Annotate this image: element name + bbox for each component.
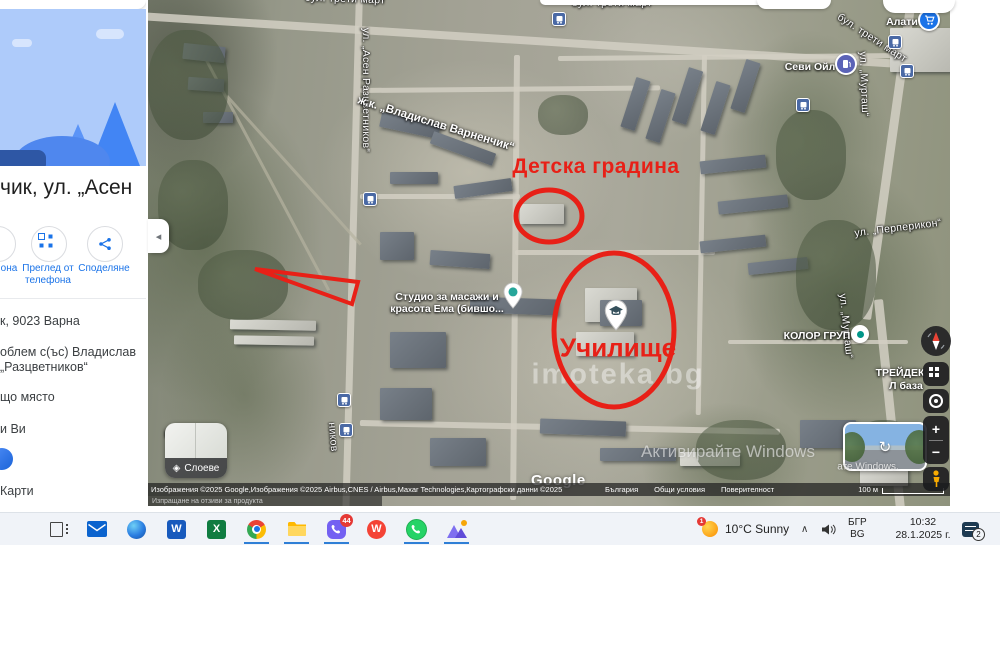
- show-hidden-icons-button[interactable]: ∧: [801, 513, 808, 545]
- building-decoration: [470, 296, 559, 315]
- pegman-button[interactable]: [923, 467, 949, 491]
- time-text: 10:32: [910, 516, 936, 529]
- word-icon: W: [167, 520, 186, 539]
- map-floating-card-edge: [757, 0, 831, 9]
- compass-needle-icon: [925, 330, 947, 352]
- speaker-icon: [821, 523, 836, 536]
- trees-decoration: [796, 220, 876, 330]
- pegman-icon: [930, 470, 942, 488]
- building-decoration: [730, 59, 760, 113]
- attribution-bar: Изображения ©2025 Google,Изображения ©20…: [148, 483, 950, 496]
- building-decoration: [718, 194, 789, 214]
- road-decoration: [148, 12, 950, 73]
- wps-icon: W: [367, 520, 386, 539]
- word-app-button[interactable]: W: [166, 517, 187, 541]
- whatsapp-button[interactable]: [406, 517, 427, 541]
- weather-text: 10°C Sunny: [725, 522, 789, 536]
- whatsapp-icon: [406, 519, 427, 540]
- mountains-app-button[interactable]: [446, 517, 467, 541]
- view-from-phone-button[interactable]: [31, 226, 67, 262]
- viber-app-button[interactable]: 44: [326, 517, 347, 541]
- building-decoration: [380, 388, 432, 420]
- hero-base-decoration: [0, 150, 46, 166]
- building-decoration: [645, 89, 675, 143]
- chrome-icon: [247, 520, 266, 539]
- building-decoration: [390, 332, 446, 368]
- compass-control[interactable]: [921, 326, 951, 356]
- street-view-preview-icon: ↻: [879, 438, 892, 456]
- share-button[interactable]: [87, 226, 123, 262]
- cloud-decoration: [12, 39, 32, 47]
- language-indicator[interactable]: БГР BG: [848, 513, 867, 545]
- share-label[interactable]: Споделяне: [74, 263, 134, 275]
- attribution-text: Изображения ©2025 Google,Изображения ©20…: [151, 485, 591, 494]
- building-decoration: [230, 319, 316, 330]
- weather-sun-icon: 1: [702, 521, 718, 537]
- file-explorer-button[interactable]: [286, 517, 307, 541]
- clock[interactable]: 10:32 28.1.2025 г.: [888, 513, 958, 545]
- building-decoration: [430, 131, 496, 166]
- divider: [0, 298, 146, 299]
- scale-label: 100 м: [858, 485, 878, 494]
- map-floating-card-edge: [540, 0, 770, 5]
- layers-label: Слоеве: [184, 463, 219, 474]
- viber-badge: 44: [340, 514, 353, 527]
- map-floating-card-edge: [883, 0, 955, 13]
- attribution-link[interactable]: България: [605, 485, 638, 494]
- road-decoration: [360, 194, 520, 199]
- language-line2: BG: [850, 529, 864, 542]
- my-location-button[interactable]: [923, 389, 949, 413]
- road-decoration: [342, 0, 363, 506]
- chrome-browser-button[interactable]: [246, 517, 267, 541]
- layers-tile-decoration: [195, 423, 196, 459]
- building-decoration: [700, 235, 767, 254]
- building-decoration: [430, 250, 491, 269]
- building-decoration: [700, 155, 767, 175]
- trees-decoration: [198, 250, 288, 320]
- maps-link[interactable]: Карти: [0, 484, 34, 498]
- building-decoration: [540, 419, 626, 437]
- task-view-button[interactable]: [46, 517, 67, 541]
- layers-strip: ◈ Слоеве: [165, 458, 227, 478]
- place-photo-placeholder[interactable]: [0, 9, 146, 166]
- zoom-in-button[interactable]: +: [923, 418, 949, 440]
- qr-code-icon: [38, 233, 45, 240]
- street-view-preview[interactable]: ↻: [843, 422, 927, 471]
- building-decoration: [390, 172, 438, 184]
- building-decoration: [890, 28, 950, 72]
- map-apps-grid-button[interactable]: [923, 362, 949, 386]
- road-decoration: [696, 55, 707, 415]
- building-decoration: [576, 332, 634, 356]
- folder-icon: [287, 521, 307, 537]
- notification-badge: 2: [972, 528, 985, 541]
- weather-badge: 1: [697, 517, 706, 526]
- road-decoration: [515, 250, 715, 255]
- excel-app-button[interactable]: X: [206, 517, 227, 541]
- excel-icon: X: [207, 520, 226, 539]
- maps-app-icon: [0, 448, 13, 470]
- windows-taskbar: W X 44 W 1 10°C Sunny: [0, 512, 1000, 545]
- desktop: { "sidebar": { "title": "чик, ул. „Асен"…: [0, 0, 1000, 666]
- edge-icon: [127, 520, 146, 539]
- share-icon: [98, 237, 112, 251]
- language-line1: БГР: [848, 517, 867, 530]
- building-decoration: [672, 67, 704, 125]
- task-view-icon: [50, 522, 63, 537]
- chevron-left-icon: ◂: [156, 230, 162, 243]
- chevron-up-icon: ∧: [801, 524, 808, 535]
- add-missing-place-link[interactable]: що място: [0, 390, 55, 404]
- edge-browser-button[interactable]: [126, 517, 147, 541]
- layers-button[interactable]: ◈ Слоеве: [165, 423, 227, 478]
- crosshair-icon: [929, 394, 943, 408]
- trees-decoration: [148, 30, 228, 140]
- attribution-links: БългарияОбщи условияПоверителност: [605, 485, 774, 494]
- mail-app-button[interactable]: [86, 517, 107, 541]
- place-title: чик, ул. „Асен: [0, 176, 132, 200]
- building-decoration: [520, 204, 564, 224]
- building-decoration: [600, 300, 642, 326]
- building-decoration: [430, 438, 486, 466]
- sidebar-collapse-button[interactable]: ◂: [148, 219, 169, 253]
- notification-icon: 2: [962, 522, 979, 537]
- claim-text-line2: „Разцветников“: [0, 360, 88, 374]
- notification-center-button[interactable]: 2: [962, 513, 979, 545]
- action-button-partial[interactable]: [0, 226, 16, 262]
- place-address: к, 9023 Варна: [0, 314, 80, 328]
- building-decoration: [380, 232, 414, 260]
- place-panel: чик, ул. „Асен она Преглед от телефона С…: [0, 0, 146, 512]
- claim-text-line1: облем с(ъс) Владислав: [0, 345, 136, 359]
- grid-icon: [929, 367, 933, 371]
- view-from-phone-label[interactable]: Преглед от телефона: [17, 263, 79, 287]
- satellite-map[interactable]: [148, 0, 950, 506]
- mail-icon: [87, 521, 107, 537]
- attribution-link[interactable]: Поверителност: [721, 485, 774, 494]
- trees-decoration: [538, 95, 588, 135]
- cloud-decoration: [96, 29, 124, 39]
- wps-office-button[interactable]: W: [366, 517, 387, 541]
- search-box-edge[interactable]: [0, 0, 146, 9]
- date-text: 28.1.2025 г.: [895, 529, 950, 542]
- weather-widget[interactable]: 1 10°C Sunny: [702, 513, 789, 545]
- zoom-control: + −: [923, 416, 949, 464]
- feedback-link[interactable]: Изпращане на отзиви за продукта: [152, 498, 263, 505]
- road-decoration: [728, 340, 908, 344]
- for-you-text: и Ви: [0, 422, 26, 436]
- volume-button[interactable]: [821, 513, 836, 545]
- feedback-bar: Изпращане на отзиви за продукта: [148, 496, 382, 506]
- road-decoration: [510, 55, 520, 500]
- building-decoration: [600, 448, 676, 461]
- building-decoration: [234, 335, 314, 345]
- trees-decoration: [776, 110, 846, 200]
- layers-icon: ◈: [173, 463, 181, 474]
- road-decoration: [360, 85, 660, 93]
- zoom-out-button[interactable]: −: [923, 441, 949, 463]
- trees-decoration: [696, 420, 786, 480]
- attribution-link[interactable]: Общи условия: [654, 485, 705, 494]
- mountains-app-icon: [447, 520, 467, 538]
- taskbar-apps: W X 44 W: [46, 513, 467, 545]
